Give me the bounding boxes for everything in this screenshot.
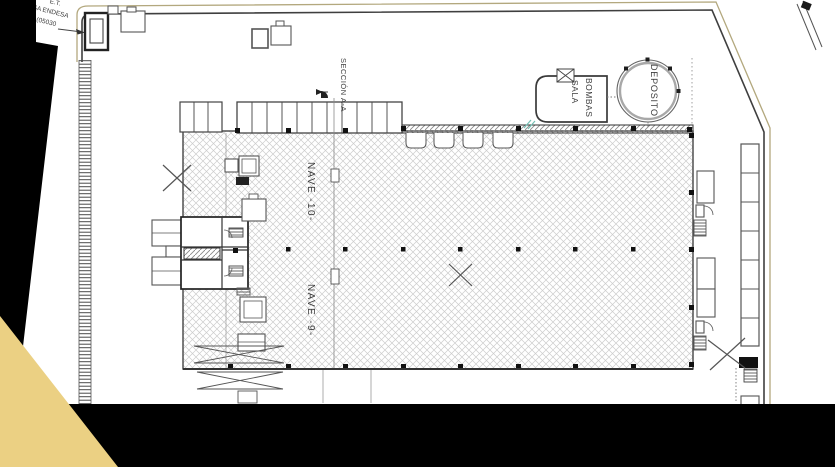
boundary-hut (121, 11, 145, 32)
pump-room: SALA BOMBAS (536, 69, 616, 122)
north-wall-band (402, 125, 693, 133)
boundary-hut-small (108, 6, 118, 14)
tank-label: DEPOSITO (649, 64, 659, 117)
water-tank: DEPOSITO (617, 58, 692, 129)
label-nave-10: NAVE -10- (305, 162, 316, 222)
services-block (181, 217, 248, 289)
left-black-bar (0, 0, 58, 355)
transformer-label-line1: E.T. (49, 0, 62, 8)
yard-structures (252, 21, 291, 48)
label-nave-9: NAVE -9- (305, 284, 316, 337)
leader-arrow-head (76, 29, 85, 35)
site-plan-svg: E.T. FECSA ENDESA Núm (05030 SALA BOMBAS… (0, 0, 835, 467)
transformer-inner (90, 19, 103, 43)
west-annexes (152, 220, 181, 285)
yard-hut-1 (252, 29, 268, 48)
bottom-black-bar (0, 404, 835, 467)
yard-hut-2 (271, 26, 291, 45)
gridlines-below (323, 369, 371, 403)
yard-hut-2-tab (276, 21, 284, 26)
screenshot-stage: E.T. FECSA ENDESA Núm (05030 SALA BOMBAS… (0, 0, 835, 467)
pump-room-label-1: SALA (570, 80, 580, 104)
pole-head (801, 1, 812, 11)
east-parking-bays (708, 144, 759, 405)
warehouse-building: NAVE -10- NAVE -9- (152, 98, 694, 403)
boundary-west-wall-hatch (79, 60, 91, 404)
pump-room-label-2: BOMBAS (584, 78, 594, 117)
east-stair (744, 369, 757, 382)
section-label: SECCIÓN A-A (339, 58, 348, 112)
east-annexes (694, 171, 715, 350)
utility-pole (797, 1, 822, 50)
boundary-hut-tab (127, 7, 136, 12)
